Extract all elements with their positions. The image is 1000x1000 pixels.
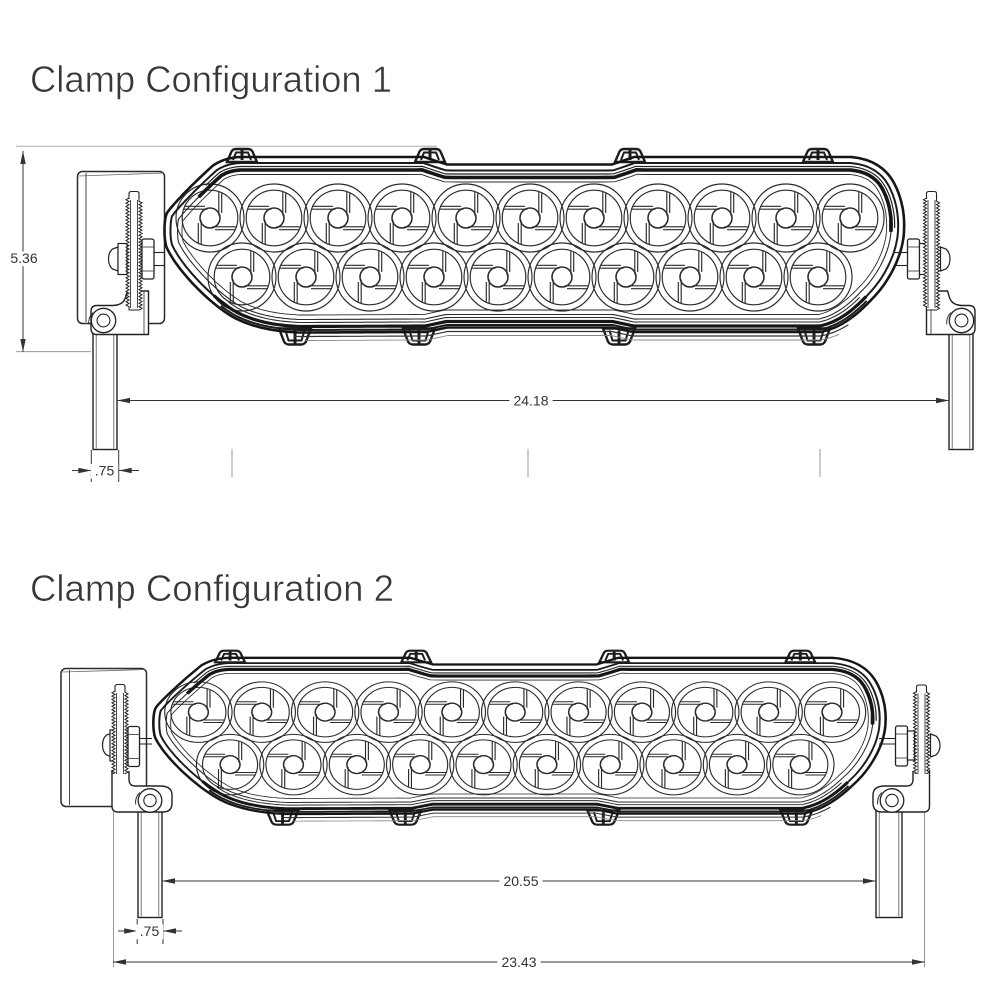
svg-text:.75: .75 (140, 923, 160, 939)
svg-text:Clamp Configuration 1: Clamp Configuration 1 (30, 59, 392, 100)
svg-text:24.18: 24.18 (513, 393, 548, 409)
svg-text:.75: .75 (95, 463, 115, 479)
svg-text:20.55: 20.55 (503, 873, 538, 889)
svg-text:23.43: 23.43 (501, 954, 536, 970)
svg-text:5.36: 5.36 (10, 250, 37, 266)
svg-text:Clamp Configuration 2: Clamp Configuration 2 (30, 568, 394, 609)
